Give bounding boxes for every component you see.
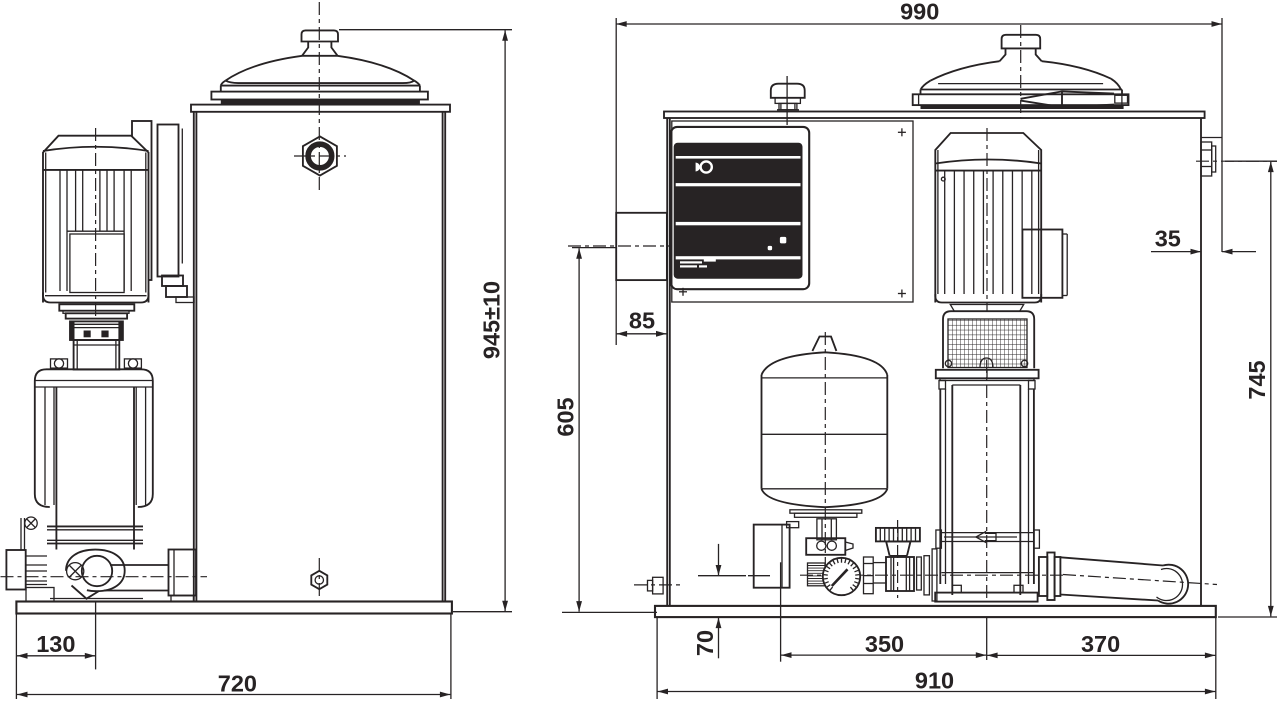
- svg-text:990: 990: [900, 0, 939, 24]
- svg-text:85: 85: [629, 308, 655, 334]
- svg-text:70: 70: [692, 630, 718, 656]
- svg-text:35: 35: [1155, 226, 1181, 252]
- svg-text:745: 745: [1244, 360, 1270, 399]
- svg-text:605: 605: [553, 397, 579, 436]
- svg-text:370: 370: [1081, 631, 1120, 657]
- svg-text:130: 130: [36, 631, 75, 657]
- svg-text:910: 910: [915, 667, 954, 693]
- svg-text:720: 720: [218, 670, 257, 696]
- svg-text:350: 350: [865, 631, 904, 657]
- svg-text:945±10: 945±10: [479, 281, 505, 359]
